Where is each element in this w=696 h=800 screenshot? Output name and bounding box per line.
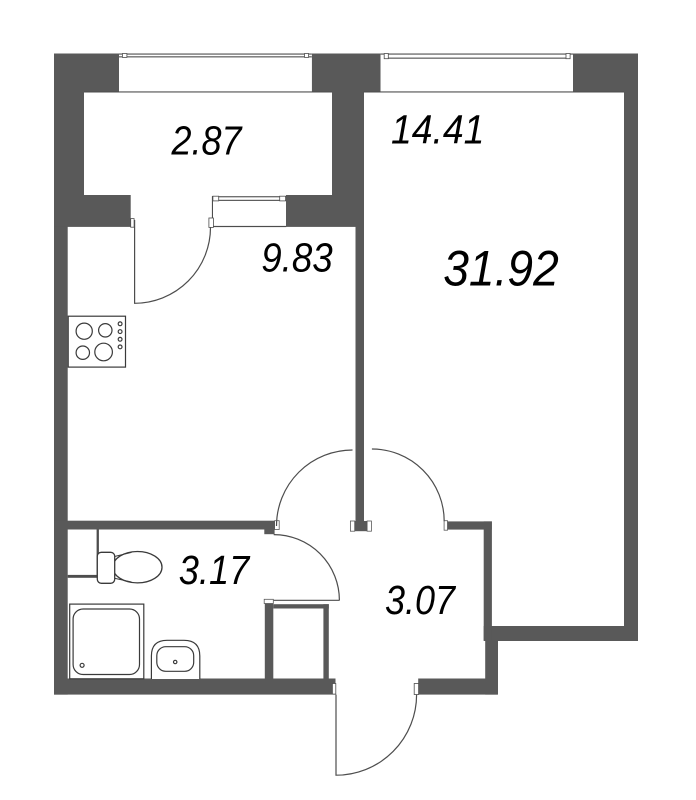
svg-text:9.83: 9.83 bbox=[261, 234, 333, 280]
svg-text:14.41: 14.41 bbox=[391, 107, 485, 153]
svg-text:31.92: 31.92 bbox=[443, 240, 559, 297]
svg-text:3.17: 3.17 bbox=[179, 547, 251, 593]
svg-text:2.87: 2.87 bbox=[171, 118, 244, 164]
svg-text:3.07: 3.07 bbox=[385, 577, 457, 623]
